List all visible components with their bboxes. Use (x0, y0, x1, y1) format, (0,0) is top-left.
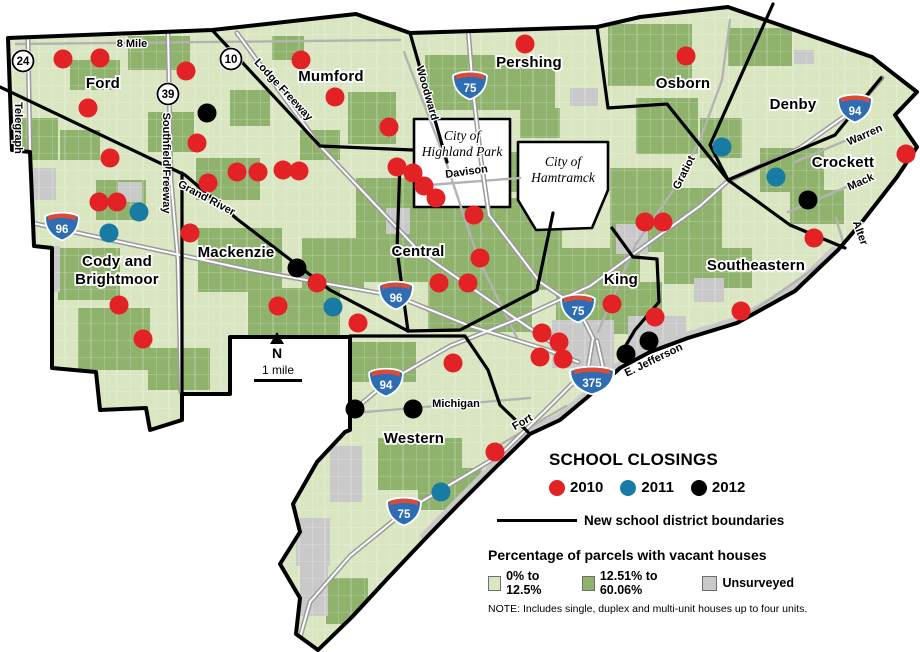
shield-number: 75 (464, 83, 477, 95)
school-closing-dot-2010 (134, 330, 153, 349)
school-closing-dot-2010 (101, 149, 120, 168)
school-closing-dot-2010 (465, 206, 484, 225)
district-label: Western (384, 430, 444, 447)
school-closing-dot-2010 (732, 302, 751, 321)
district-label: Brightmoor (75, 271, 159, 288)
school-closing-dot-2011 (100, 224, 119, 243)
swatch-low-icon (488, 576, 501, 591)
shield-number: 94 (380, 380, 393, 392)
closing-dot-2012-icon (691, 480, 707, 496)
school-closing-dot-2010 (269, 297, 288, 316)
school-closing-dot-2010 (380, 118, 399, 137)
road-label: 8 Mile (117, 38, 148, 50)
legend-vacancy-unsurveyed: Unsurveyed (702, 576, 794, 591)
legend-year-2011: 2011 (620, 479, 674, 496)
legend-vacancy-swatches: 0% to 12.5% 12.51% to 60.06% Unsurveyed (488, 569, 808, 597)
scale-bar-icon (254, 379, 302, 382)
school-closing-dot-2010 (646, 308, 665, 327)
school-closing-dot-2012 (404, 400, 423, 419)
district-label: Mumford (298, 68, 364, 85)
detroit-school-closings-map: 96967575759494375241039 8 MileTelegraphS… (0, 0, 920, 652)
school-closing-dot-2012 (617, 345, 636, 364)
legend-year-2010-label: 2010 (570, 479, 603, 496)
legend-vacancy-low-label: 0% to 12.5% (506, 569, 568, 597)
legend-boundary-label: New school district boundaries (584, 513, 784, 528)
legend-vacancy-high-label: 12.51% to 60.06% (600, 569, 689, 597)
school-closing-dot-2010 (444, 354, 463, 373)
enclave-label-hamtramck: City of (545, 154, 584, 169)
school-closing-dot-2010 (228, 163, 247, 182)
closing-dot-2010-icon (549, 480, 565, 496)
shield-number: 75 (398, 509, 411, 521)
school-closing-dot-2010 (554, 350, 573, 369)
school-closing-dot-2011 (324, 298, 343, 317)
shield-number: 94 (849, 106, 862, 118)
route-shield-39: 39 (156, 82, 180, 106)
legend-years-row: 2010 2011 2012 (549, 479, 808, 496)
school-closing-dot-2010 (531, 348, 550, 367)
school-closing-dot-2010 (677, 47, 696, 66)
legend-note: NOTE: Includes single, duplex and multi-… (488, 603, 808, 615)
school-closing-dot-2010 (550, 333, 569, 352)
north-label: N (272, 345, 282, 361)
school-closing-dot-2010 (308, 274, 327, 293)
school-closing-dot-2010 (427, 189, 446, 208)
school-closing-dot-2010 (897, 145, 916, 164)
legend-year-2012-label: 2012 (712, 479, 745, 496)
shield-number: 96 (390, 293, 403, 305)
district-label: Denby (770, 96, 817, 113)
school-closing-dot-2011 (432, 483, 451, 502)
road-label: Southfield Freeway (160, 113, 172, 215)
school-closing-dot-2010 (54, 50, 73, 69)
school-closing-dot-2010 (79, 99, 98, 118)
school-closing-dot-2010 (292, 51, 311, 70)
school-closing-dot-2010 (636, 213, 655, 232)
school-closing-dot-2010 (603, 295, 622, 314)
school-closing-dot-2010 (188, 134, 207, 153)
scale-label: 1 mile (262, 363, 294, 377)
school-closing-dot-2010 (110, 296, 129, 315)
legend-vacancy-title: Percentage of parcels with vacant houses (488, 547, 808, 563)
district-label: Central (391, 243, 444, 260)
enclave-label-highland-park: Highland Park (421, 144, 504, 159)
school-closing-dot-2012 (346, 400, 365, 419)
route-shield-10: 10 (219, 47, 243, 71)
legend-year-2011-label: 2011 (641, 479, 674, 496)
school-closing-dot-2010 (471, 249, 490, 268)
school-closing-dot-2010 (91, 49, 110, 68)
district-label: Crockett (812, 154, 874, 171)
shield-number: 96 (56, 224, 69, 236)
school-closing-dot-2012 (198, 104, 217, 123)
shield-number: 375 (582, 378, 602, 390)
north-arrow: N1 mile (254, 332, 302, 382)
swatch-high-icon (582, 576, 595, 591)
school-closing-dot-2010 (805, 229, 824, 248)
road-label: Michigan (432, 398, 480, 410)
district-label: Southeastern (707, 257, 805, 274)
legend-year-2012: 2012 (691, 479, 745, 496)
school-closing-dot-2010 (326, 88, 345, 107)
legend-title: SCHOOL CLOSINGS (549, 450, 808, 470)
shield-number: 75 (572, 306, 585, 318)
school-closing-dot-2010 (349, 314, 368, 333)
school-closing-dot-2012 (640, 332, 659, 351)
school-closing-dot-2011 (130, 203, 149, 222)
legend-vacancy-unsurveyed-label: Unsurveyed (722, 576, 794, 590)
school-closing-dot-2010 (90, 193, 109, 212)
school-closing-dot-2010 (181, 224, 200, 243)
road-label: Telegraph (12, 102, 24, 154)
school-closing-dot-2010 (533, 324, 552, 343)
school-closing-dot-2010 (430, 274, 449, 293)
district-label: Pershing (496, 54, 562, 71)
boundary-line-icon (497, 519, 577, 522)
district-label: Cody and (82, 253, 152, 270)
shield-number: 39 (162, 89, 175, 101)
school-closing-dot-2010 (177, 62, 196, 81)
legend-vacancy-low: 0% to 12.5% (488, 569, 568, 597)
district-label: Osborn (656, 75, 711, 92)
legend-vacancy-high: 12.51% to 60.06% (582, 569, 689, 597)
legend-boundary-row: New school district boundaries (497, 513, 808, 528)
route-shield-24: 24 (11, 49, 35, 73)
enclave-label-highland-park: City of (444, 128, 483, 143)
legend: SCHOOL CLOSINGS 2010 2011 2012 New schoo… (488, 450, 808, 615)
school-closing-dot-2012 (288, 259, 307, 278)
school-closing-dot-2010 (249, 163, 268, 182)
legend-year-2010: 2010 (549, 479, 603, 496)
district-label: King (604, 271, 638, 288)
school-closing-dot-2012 (799, 191, 818, 210)
district-label: Ford (86, 75, 120, 92)
shield-number: 10 (225, 54, 238, 66)
enclave-label-hamtramck: Hamtramck (530, 170, 596, 185)
school-closing-dot-2011 (713, 138, 732, 157)
closing-dot-2011-icon (620, 480, 636, 496)
shield-number: 24 (17, 56, 30, 68)
school-closing-dot-2010 (290, 162, 309, 181)
school-closing-dot-2010 (108, 193, 127, 212)
district-label: Mackenzie (198, 244, 275, 261)
school-closing-dot-2010 (516, 35, 535, 54)
school-closing-dot-2010 (459, 274, 478, 293)
swatch-unsurveyed-icon (702, 576, 717, 591)
school-closing-dot-2010 (654, 213, 673, 232)
school-closing-dot-2011 (767, 168, 786, 187)
